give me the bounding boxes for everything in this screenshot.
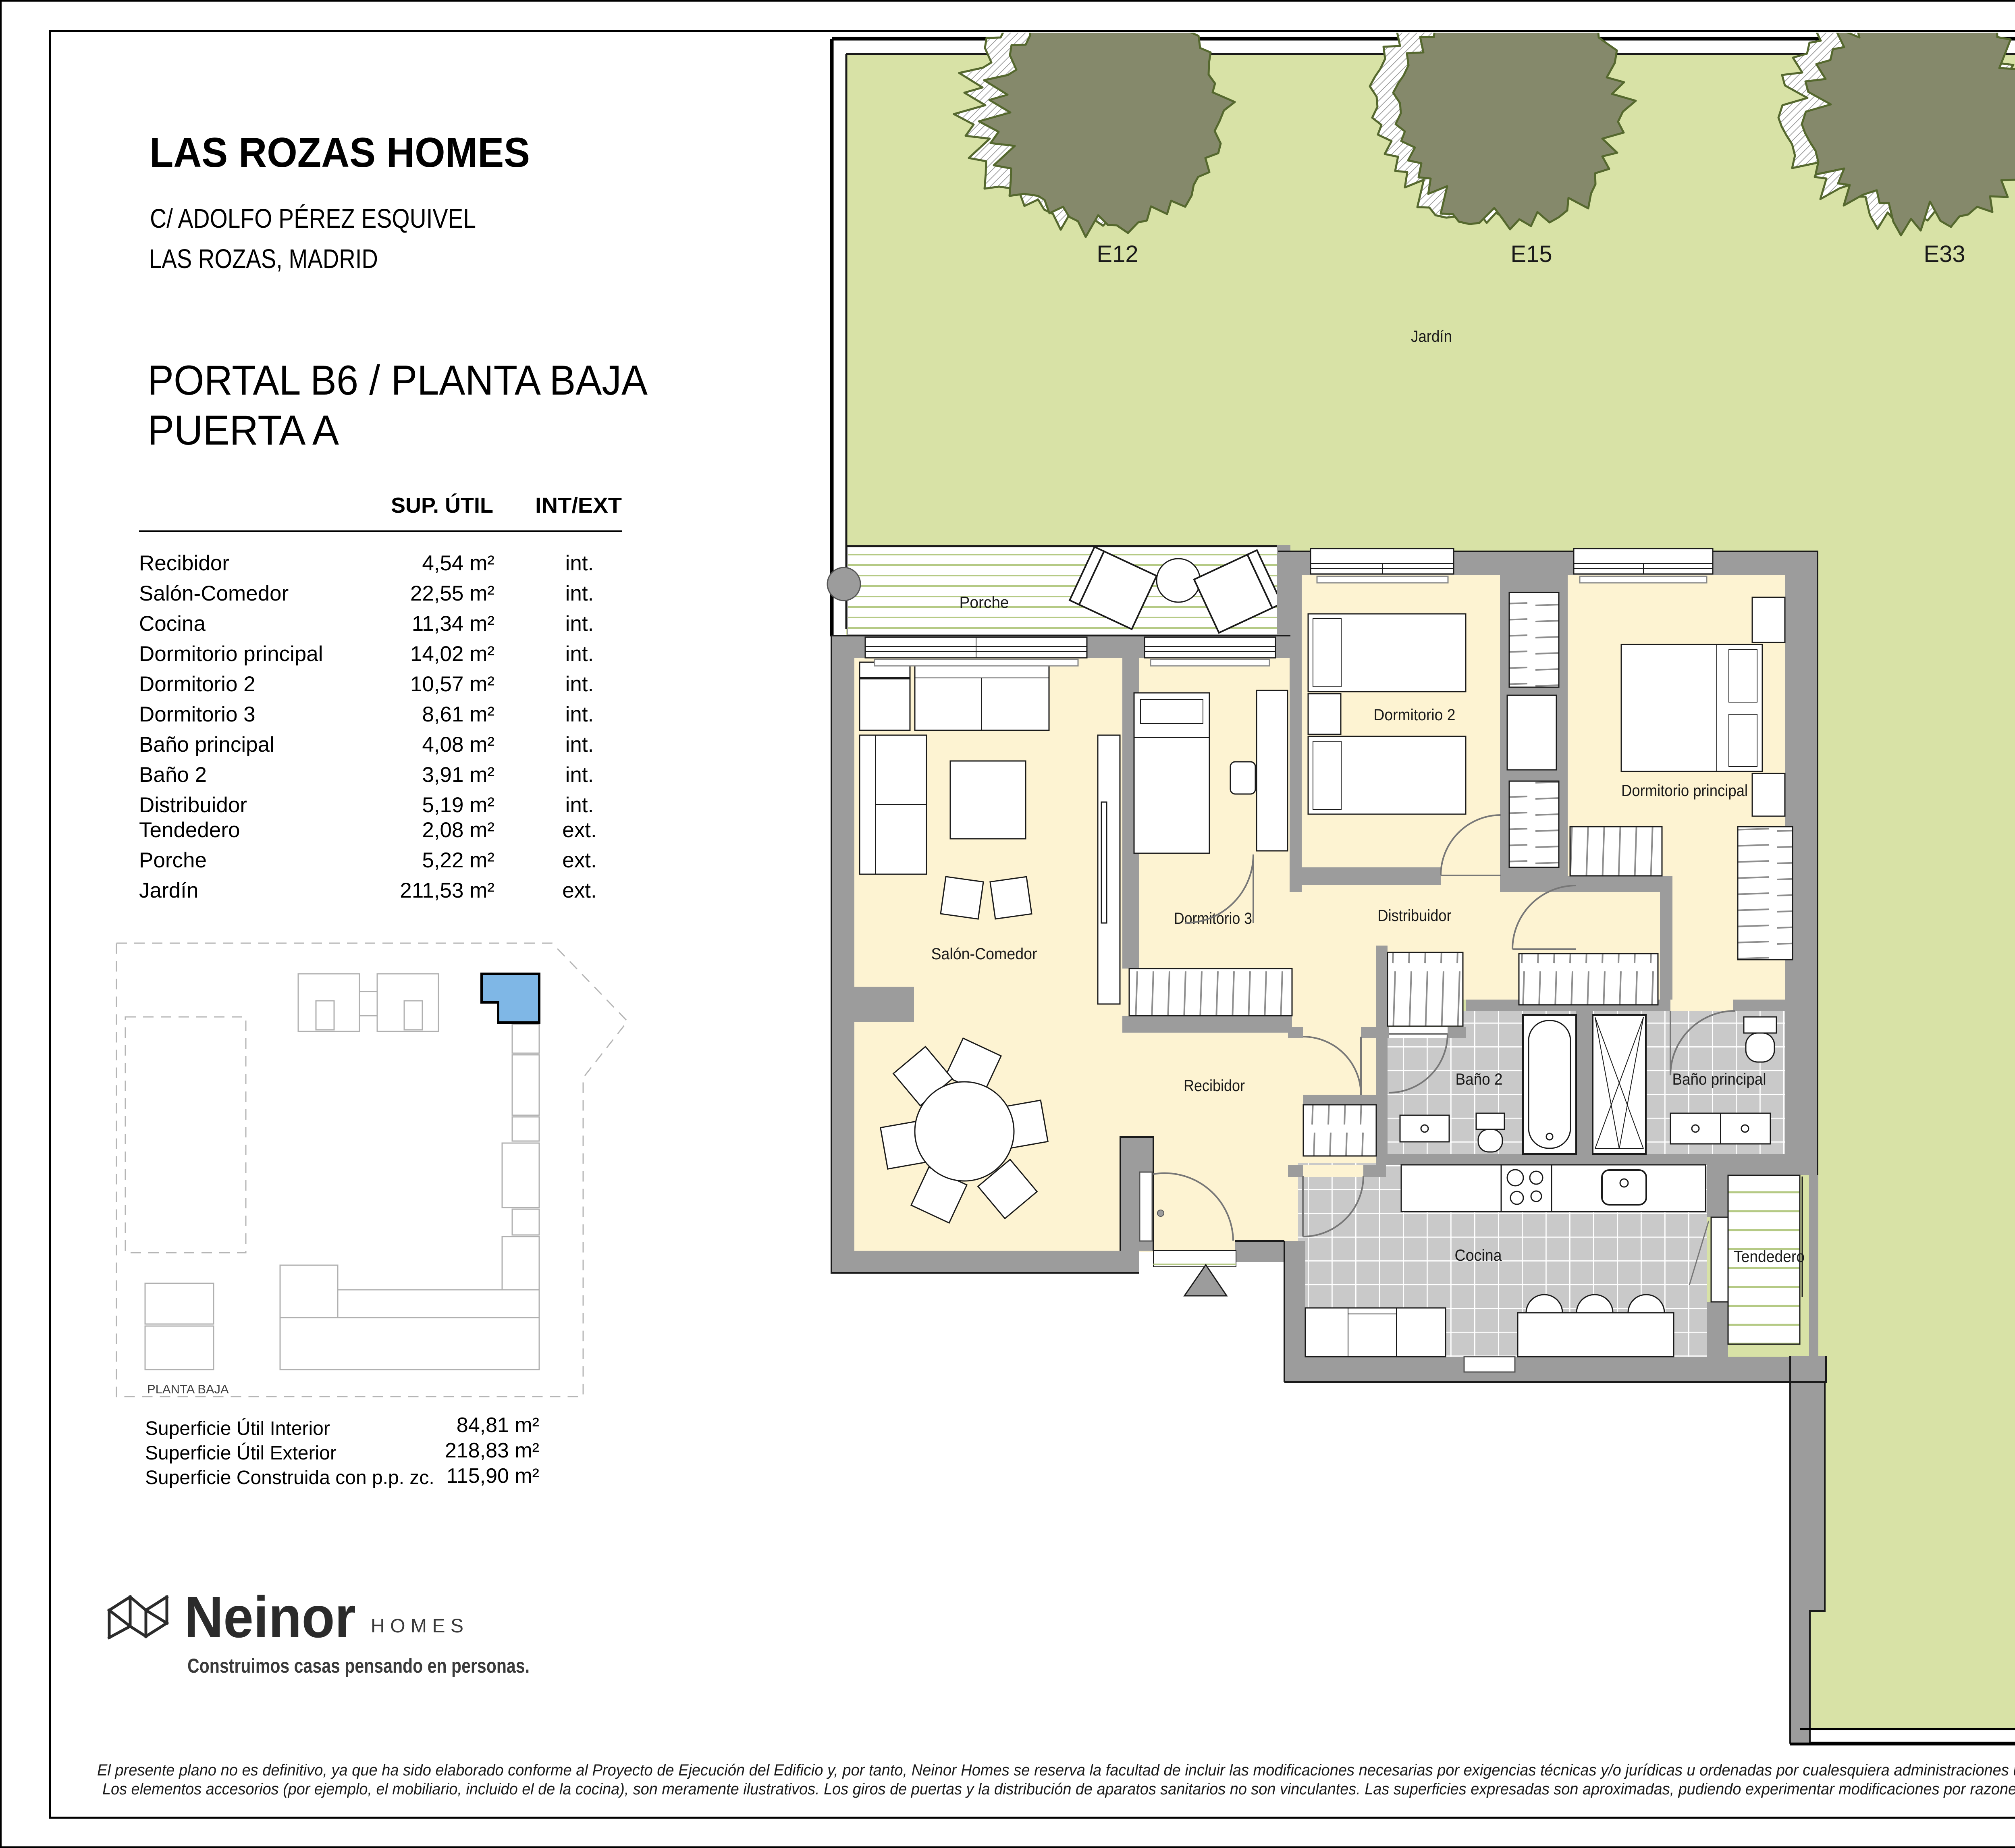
- svg-text:int.: int.: [565, 672, 594, 696]
- svg-text:Recibidor: Recibidor: [1184, 1077, 1245, 1095]
- svg-text:int.: int.: [565, 642, 594, 666]
- svg-text:10,57 m²: 10,57 m²: [410, 672, 494, 696]
- svg-text:Distribuidor: Distribuidor: [139, 793, 247, 817]
- svg-text:Cocina: Cocina: [139, 612, 206, 636]
- svg-text:Jardín: Jardín: [139, 879, 198, 902]
- svg-text:Salón-Comedor: Salón-Comedor: [139, 582, 289, 605]
- svg-text:E33: E33: [1924, 241, 1965, 267]
- svg-text:Jardín: Jardín: [1411, 328, 1452, 345]
- svg-text:11,34 m²: 11,34 m²: [412, 612, 494, 636]
- svg-text:Baño principal: Baño principal: [139, 733, 274, 757]
- svg-text:LAS ROZAS, MADRID: LAS ROZAS, MADRID: [149, 244, 378, 274]
- svg-text:PORTAL B6 / PLANTA BAJA: PORTAL B6 / PLANTA BAJA: [147, 357, 648, 404]
- svg-text:Dormitorio principal: Dormitorio principal: [139, 642, 323, 666]
- svg-text:5,19 m²: 5,19 m²: [422, 793, 494, 817]
- svg-text:int.: int.: [565, 733, 594, 757]
- svg-text:Tendedero: Tendedero: [139, 818, 240, 842]
- svg-text:Baño 2: Baño 2: [1456, 1071, 1503, 1088]
- svg-text:E15: E15: [1510, 241, 1552, 267]
- svg-text:int.: int.: [565, 793, 594, 817]
- svg-text:Cocina: Cocina: [1455, 1247, 1502, 1264]
- svg-text:Recibidor: Recibidor: [139, 551, 229, 575]
- svg-text:2,08 m²: 2,08 m²: [422, 818, 494, 842]
- svg-text:Superficie Útil Interior: Superficie Útil Interior: [145, 1418, 330, 1439]
- svg-text:ext.: ext.: [562, 879, 596, 902]
- svg-text:4,54 m²: 4,54 m²: [422, 551, 494, 575]
- svg-text:115,90 m²: 115,90 m²: [447, 1464, 539, 1488]
- svg-text:Construimos casas pensando en: Construimos casas pensando en personas.: [187, 1655, 530, 1677]
- svg-text:Dormitorio principal: Dormitorio principal: [1621, 782, 1748, 800]
- svg-text:int.: int.: [565, 582, 594, 605]
- svg-text:Dormitorio 2: Dormitorio 2: [1374, 706, 1456, 724]
- svg-text:14,02 m²: 14,02 m²: [410, 642, 494, 666]
- svg-text:Porche: Porche: [139, 848, 207, 872]
- svg-text:Tendedero: Tendedero: [1734, 1248, 1805, 1266]
- svg-text:Dormitorio 2: Dormitorio 2: [139, 672, 256, 696]
- svg-text:INT/EXT: INT/EXT: [535, 493, 622, 518]
- svg-text:Baño 2: Baño 2: [139, 763, 207, 787]
- svg-text:22,55 m²: 22,55 m²: [410, 582, 494, 605]
- svg-text:ext.: ext.: [562, 818, 596, 842]
- svg-text:SUP. ÚTIL: SUP. ÚTIL: [391, 493, 493, 518]
- svg-text:El presente plano no es defini: El presente plano no es definitivo, ya q…: [97, 1761, 2015, 1779]
- svg-text:Neinor: Neinor: [184, 1584, 356, 1650]
- svg-text:LAS ROZAS HOMES: LAS ROZAS HOMES: [150, 129, 530, 176]
- svg-text:Superficie Útil Exterior: Superficie Útil Exterior: [145, 1442, 337, 1464]
- svg-text:Dormitorio 3: Dormitorio 3: [1174, 910, 1252, 927]
- svg-text:Baño principal: Baño principal: [1672, 1071, 1766, 1088]
- svg-text:4,08 m²: 4,08 m²: [422, 733, 494, 757]
- svg-text:8,61 m²: 8,61 m²: [422, 703, 494, 726]
- svg-text:PLANTA BAJA: PLANTA BAJA: [147, 1382, 229, 1396]
- svg-text:Salón-Comedor: Salón-Comedor: [931, 945, 1037, 963]
- svg-text:84,81 m²: 84,81 m²: [457, 1414, 539, 1437]
- svg-text:3,91 m²: 3,91 m²: [422, 763, 494, 787]
- svg-text:PUERTA A: PUERTA A: [147, 407, 339, 454]
- svg-text:Porche: Porche: [960, 594, 1009, 611]
- svg-text:int.: int.: [565, 612, 594, 636]
- svg-text:218,83 m²: 218,83 m²: [445, 1439, 539, 1462]
- svg-text:int.: int.: [565, 763, 594, 787]
- svg-text:int.: int.: [565, 551, 594, 575]
- svg-text:Distribuidor: Distribuidor: [1378, 907, 1452, 925]
- svg-text:5,22 m²: 5,22 m²: [422, 848, 494, 872]
- svg-text:int.: int.: [565, 703, 594, 726]
- svg-text:C/ ADOLFO PÉREZ ESQUIVEL: C/ ADOLFO PÉREZ ESQUIVEL: [150, 204, 476, 234]
- svg-text:Superficie Construida con p.p.: Superficie Construida con p.p. zc.: [145, 1467, 434, 1488]
- svg-text:ext.: ext.: [562, 848, 596, 872]
- svg-text:Dormitorio 3: Dormitorio 3: [139, 703, 256, 726]
- svg-text:211,53 m²: 211,53 m²: [400, 879, 494, 902]
- svg-text:Los elementos accesorios (por: Los elementos accesorios (por ejemplo, e…: [102, 1780, 2015, 1798]
- svg-text:E12: E12: [1097, 241, 1138, 267]
